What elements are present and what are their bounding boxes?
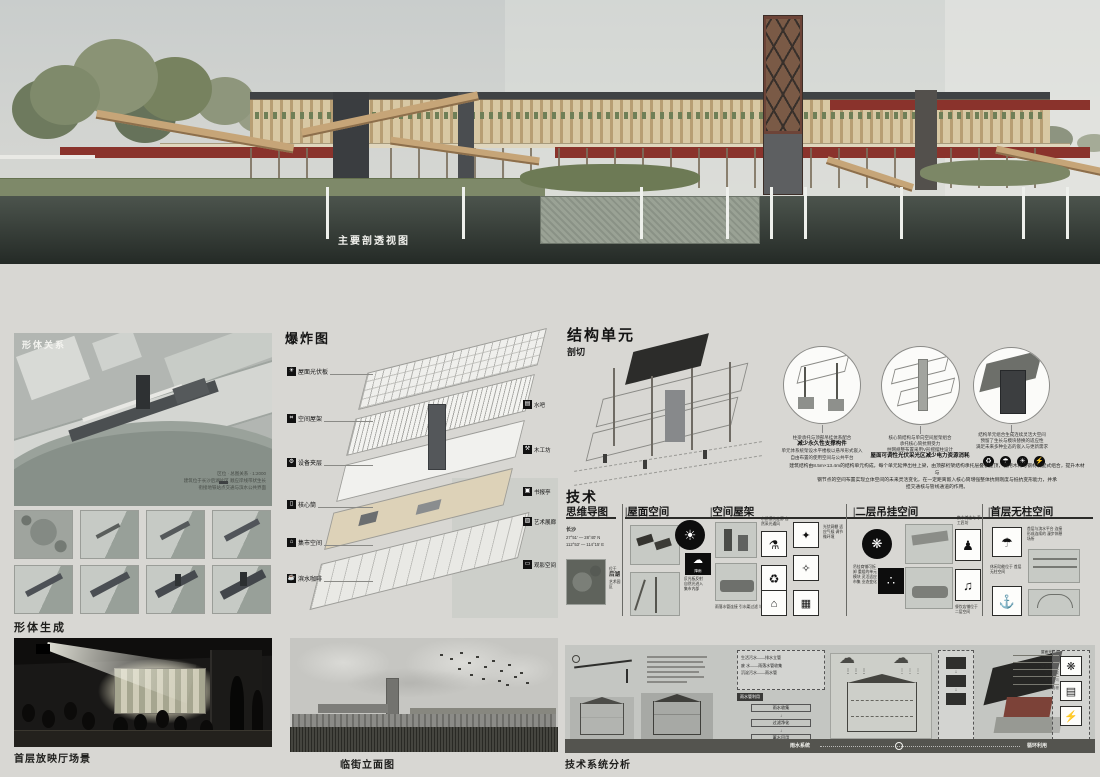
circle-caption-3: 结构单元组合生成连续灵活大空间 预留了生长与模块替换的适应性 满足未来多种业态的… — [955, 432, 1069, 450]
tower-bracing — [766, 19, 800, 131]
flow-tag: 雨水管利用 — [737, 693, 763, 701]
mindmap-city: 长沙 — [566, 527, 576, 534]
building-tower — [136, 375, 150, 409]
structure-unit-panel: 结构单元 剖切 柱梁承托与顶部吊挂体系配合 减少永久性支撑构件 — [565, 322, 1095, 500]
form-step-3 — [146, 510, 205, 559]
section-sketch-a — [570, 697, 634, 741]
form-step-5 — [14, 565, 73, 614]
band-label-left: 雨水系统 — [790, 742, 810, 749]
site-block-2 — [92, 333, 142, 371]
hang-note-left: 吊挂商铺可拆卸 重组的单元模块 灵活适应市集 业态变化 — [853, 565, 877, 585]
mindmap-lng: 112°53′ — 114°15′ E — [566, 542, 604, 547]
mindmap-lat: 27°51′ — 28°40′ N — [566, 535, 600, 540]
massing-label: 形体关系 — [22, 338, 66, 351]
roof-photo-1 — [630, 525, 680, 565]
grape-icon: ∴ — [878, 568, 904, 594]
form-step-4 — [212, 510, 271, 559]
legend-core: ▯ 核心筒 — [287, 500, 373, 509]
massing-note-2: 建筑位于长沙后湖片区 顺应岸线带状生长 — [154, 478, 266, 485]
water-recycle-icon: ♻ — [761, 565, 787, 591]
piloti — [640, 187, 643, 239]
power-icon: ⚡ — [1060, 706, 1082, 726]
tech-caption: 技术系统分析 — [565, 756, 631, 771]
floor — [14, 730, 272, 747]
core-volume — [428, 404, 446, 470]
scene-caption: 首层放映厅场景 — [14, 750, 91, 765]
cloud-3 — [485, 652, 555, 688]
birds-icon: ✦ — [793, 522, 819, 548]
legend-market: ⌂ 集市空间 — [287, 538, 373, 547]
structure-diagram-3 — [973, 347, 1050, 424]
piloti — [1022, 187, 1025, 239]
piloti — [726, 187, 729, 239]
core-block-2 — [458, 92, 474, 187]
legend-cinema: ▭ 观影空间 — [523, 560, 561, 569]
garden-right — [920, 160, 1070, 186]
rain-cloud-left: ☁ — [839, 648, 855, 668]
cloud-shadow — [345, 668, 475, 698]
piloti — [1066, 187, 1069, 239]
fan-icon: ❋ — [1060, 656, 1082, 676]
band-label-right: 循环利用 — [1027, 742, 1047, 749]
rain-section-diagram: ☁ ☁ ⋮⋮⋮ ⋮⋮⋮ — [830, 653, 932, 739]
elevation-caption: 临街立面图 — [340, 756, 395, 771]
market-icon: ⌂ — [287, 538, 296, 547]
lounge-icon: ☂ — [992, 527, 1022, 557]
structure-diagram-1 — [783, 346, 861, 424]
kiosk-icon: ▣ — [523, 487, 532, 496]
stair-tower — [763, 15, 803, 195]
cinema-icon: ▭ — [523, 560, 532, 569]
vendor-icon: ♟ — [955, 529, 981, 561]
rain-cloud-right: ☁ — [893, 648, 909, 668]
header-rule-2 — [625, 517, 1093, 519]
street-elevation — [290, 638, 558, 752]
section-sketch-b — [641, 693, 713, 741]
elevation-upper-left — [318, 704, 388, 713]
exploded-label: 爆炸图 — [285, 328, 330, 347]
piloti — [770, 187, 773, 239]
divider-1 — [622, 504, 623, 616]
pv-icon: ☀ — [287, 367, 296, 376]
drummer-icon: ♫ — [955, 569, 981, 601]
satellite-image — [566, 559, 606, 605]
spec-text-block — [647, 653, 709, 686]
red-parapet-right — [830, 100, 1090, 110]
stage-photo — [1028, 589, 1080, 616]
tick-1 — [822, 425, 823, 433]
legend-space-truss: ⌗ 空间屋架 — [287, 414, 373, 423]
legend-cafe: ☕ 滨水咖啡 — [287, 574, 373, 583]
cafe-icon: ☕ — [287, 574, 296, 583]
openfloor-photo — [1028, 549, 1080, 583]
battery-icon: ▤ — [1060, 681, 1082, 701]
form-step-6 — [80, 565, 139, 614]
legend-equipment: ⚙ 设备夹层 — [287, 458, 373, 467]
hero-render: 主要剖透视图 — [0, 0, 1100, 264]
truss-icon: ⌗ — [287, 414, 296, 423]
legend-kiosk: ▣ 书报亭 — [523, 487, 561, 496]
structure-diagram-2 — [881, 346, 960, 425]
tech-panel-band: 雨水系统 循环利用 — [565, 739, 1095, 753]
hood-icon: ⌂ — [761, 590, 787, 616]
divider-3 — [982, 504, 983, 616]
technology-section: 技术 思维导图 |屋面空间 |空间屋架 |二层吊挂空间 |首层无柱空间 长沙 2… — [565, 487, 1095, 620]
massing-note-3: 衔接地铁站点交通与滨水公共界面 — [154, 485, 266, 492]
truss-note-right: 光伏网棚 适应气候 调节微环境 — [823, 525, 845, 540]
garden-mid — [520, 164, 700, 192]
roof-note: 反光板反射 自然光进入 集市内部 — [684, 577, 710, 592]
trees-left — [30, 65, 100, 125]
hang-photo-1 — [905, 524, 953, 564]
piloti — [462, 187, 465, 239]
battery-diagram: ↓ ↓ — [938, 650, 974, 740]
cinema-scene — [14, 638, 272, 747]
massing-note-1: 区位 · 总图关系 · 1:2000 — [154, 471, 266, 478]
band-line — [820, 746, 1020, 747]
piloti — [326, 187, 329, 239]
form-step-2 — [80, 510, 139, 559]
gallery-icon: ▨ — [523, 517, 532, 526]
truss-photo-2 — [715, 563, 757, 601]
pv-panel-icon: ▦ — [793, 590, 819, 616]
audience — [22, 704, 35, 722]
hero-caption: 主要剖透视图 — [338, 232, 410, 247]
legend-water-bar: ▤ 水吧 — [523, 400, 561, 409]
massing-panel: 形体关系 区位 · 总图关系 · 1:2000 建筑位于长沙后湖片区 顺应岸线带… — [14, 333, 272, 506]
legend-roof-pv: ☀ 屋面光伏板 — [287, 367, 373, 376]
core-block-1 — [333, 92, 369, 190]
water-chain: 雨水收集 ↓ 过滤净化 ↓ 蓄水回用 — [737, 703, 825, 743]
structure-axon — [573, 338, 778, 488]
hang-note-top: 集市摊主与 手工匠坊 — [957, 516, 981, 526]
form-step-map — [14, 510, 73, 559]
hang-photo-2 — [905, 567, 953, 609]
elevation-main-band — [292, 714, 556, 727]
boat-icon: ⚓ — [992, 586, 1022, 616]
equipment-icon: ⚙ — [287, 458, 296, 467]
rain-cloud-icon: ☁ 降雨 — [685, 553, 711, 575]
reeds-band — [290, 727, 558, 752]
massing-note: 区位 · 总图关系 · 1:2000 建筑位于长沙后湖片区 顺应岸线带状生长 衔… — [154, 471, 266, 491]
hang-note-bottom: 餐饮店铺位于 二层空间 — [955, 605, 981, 615]
openfloor-note-mid: 休闲功能位于 首层无柱空间 — [990, 565, 1024, 575]
core-icon: ▯ — [287, 500, 296, 509]
divider-2 — [846, 504, 847, 616]
piloti — [900, 187, 903, 239]
legend-wood-shop: ⚒ 木工坊 — [523, 445, 561, 454]
tech-system-panel: 生活污水——排水立管 废 水——雨落水管收集 沉淀污水——雨水管 雨水管利用 雨… — [565, 645, 1095, 753]
truss-note-top: 木质模块走廊 自然采光通风 — [761, 517, 791, 527]
left-canopy — [0, 155, 95, 159]
mindmap-loc: 位于 后湖 艺术园区 — [609, 567, 622, 591]
piloti — [804, 187, 807, 239]
flow-chart: 生活污水——排水立管 废 水——雨落水管收集 沉淀污水——雨水管 — [737, 650, 825, 690]
openfloor-note-top: 首层与滨水平台 连接形成连续的 漫步休憩场所 — [1027, 527, 1063, 542]
form-generation-grid — [14, 510, 272, 616]
header-rule-1 — [566, 517, 616, 519]
equipment-icons-box: ❋ ▤ ⚡ — [1052, 650, 1090, 740]
roof-detail-sketch — [570, 649, 640, 689]
roof-photo-2 — [630, 572, 680, 616]
projector — [36, 644, 50, 654]
tower-base — [764, 134, 802, 194]
tick-2 — [920, 426, 921, 434]
sun-icon: ☀ — [675, 520, 705, 550]
lamp-icon: ✧ — [793, 555, 819, 581]
water-bar-icon: ▤ — [523, 400, 532, 409]
exploded-axon-panel: 爆炸图 ☀ 屋面光伏板 ⌗ 空间屋架 ⚙ 设备夹层 ▯ 核心筒 ⌂ 集市空间 ☕… — [283, 328, 563, 622]
standing-figure-1 — [230, 676, 244, 736]
corn-icon: ❋ — [862, 529, 892, 559]
form-step-8 — [212, 565, 271, 614]
truss-photo-1 — [715, 522, 757, 558]
wood-shop-icon: ⚒ — [523, 445, 532, 454]
legend-gallery: ▨ 艺术展廊 — [523, 517, 561, 526]
form-step-7 — [146, 565, 205, 614]
form-generation-label: 形体生成 — [14, 619, 66, 635]
planter-icon: ⚗ — [761, 531, 787, 557]
birds-flock — [440, 654, 443, 656]
presentation-board: { "header": { "title": "栖游集市", "logo": "… — [0, 0, 1100, 777]
